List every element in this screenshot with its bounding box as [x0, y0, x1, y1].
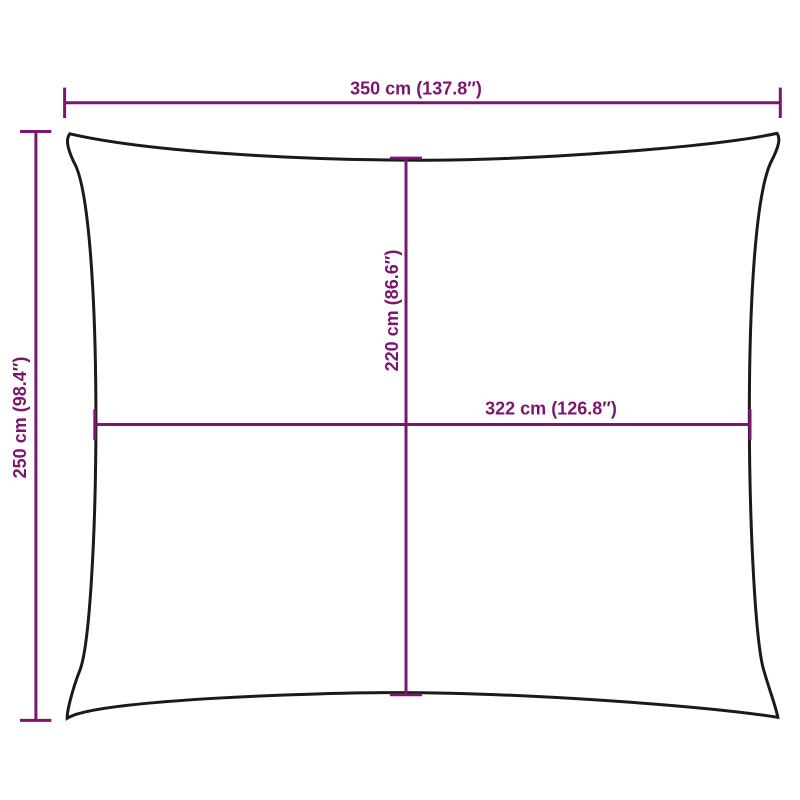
svg-text:350 cm (137.8″): 350 cm (137.8″) [350, 78, 482, 98]
svg-text:250 cm (98.4″): 250 cm (98.4″) [10, 357, 30, 479]
svg-text:220 cm (86.6″): 220 cm (86.6″) [382, 250, 402, 372]
svg-text:322 cm (126.8″): 322 cm (126.8″) [485, 399, 617, 419]
